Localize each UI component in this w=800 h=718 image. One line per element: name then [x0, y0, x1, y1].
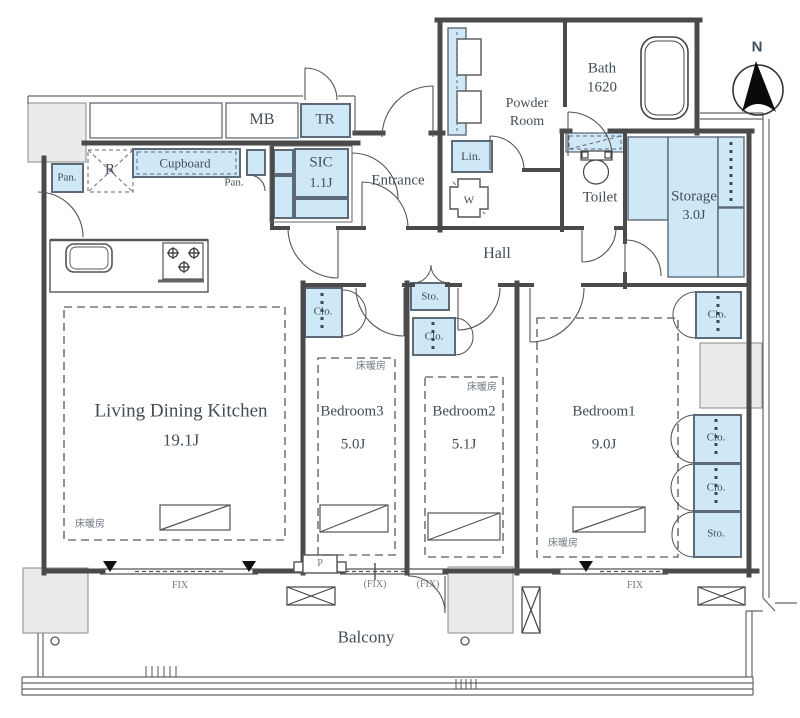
powder-room-label-1: Powder: [506, 97, 549, 111]
floor-heating-ldk: 床暖房: [75, 520, 105, 530]
toilet-label: Toilet: [583, 191, 618, 206]
compass-icon: [733, 61, 783, 115]
closet-right-2-label: Clo.: [707, 483, 726, 494]
balcony-drains: [51, 637, 469, 645]
closet-b2-label: Clo.: [425, 332, 444, 343]
pantry-label: Pan.: [57, 173, 76, 184]
bedroom2-bed: [428, 513, 500, 540]
bedroom2-label: Bedroom2: [432, 405, 495, 420]
fix-window-label-b1: FIX: [627, 581, 643, 591]
bath-size: 1620: [587, 81, 617, 96]
compass-north-label: N: [752, 40, 763, 55]
ldk-label: Living Dining Kitchen: [94, 402, 267, 421]
ldk-size: 19.1J: [163, 432, 199, 449]
pantry2-label: Pan.: [224, 178, 243, 189]
fix-window-label-b3: (FIX): [364, 580, 387, 590]
closet-right-1-label: Clo.: [707, 433, 726, 444]
sic-size: 1.1J: [310, 177, 333, 191]
bedroom2-size: 5.1J: [452, 438, 477, 453]
mb-label: MB: [250, 112, 275, 128]
powder-room-label-2: Room: [510, 115, 544, 129]
fix-window-label-ldk: FIX: [172, 581, 188, 591]
bedroom1-bed: [573, 507, 645, 532]
closet-b3-label: Clo.: [314, 307, 333, 318]
tr-label: TR: [315, 113, 334, 128]
p-pillar-label: P: [317, 559, 323, 569]
fix-window-label-b2: (FIX): [417, 580, 440, 590]
closet-b1-top-label: Clo.: [708, 310, 727, 321]
ldk-table: [160, 505, 230, 530]
hall-storage-label: Sto.: [421, 292, 438, 303]
furniture: [160, 505, 645, 540]
storage-label: Storage: [671, 190, 717, 205]
bedroom1-size: 9.0J: [592, 438, 617, 453]
floor-plan-drawing: [0, 0, 800, 718]
floor-heating-b3: 床暖房: [356, 362, 386, 372]
cupboard-label: Cupboard: [159, 157, 210, 170]
bedroom3-size: 5.0J: [341, 438, 366, 453]
bedroom3-label: Bedroom3: [320, 405, 383, 420]
entrance-label: Entrance: [371, 174, 424, 189]
bathtub: [641, 37, 688, 119]
floor-plan: MB TR Cupboard R Pan. Pan. SIC 1.1J Entr…: [0, 0, 800, 718]
hall-label: Hall: [483, 246, 511, 262]
toilet-bowl: [581, 151, 612, 184]
floor-heating-b2: 床暖房: [467, 383, 497, 393]
bedroom3-bed: [320, 505, 388, 532]
fridge-label: R: [105, 163, 115, 178]
storage-right-label: Sto.: [707, 529, 724, 540]
bath-label: Bath: [588, 62, 616, 77]
washer-label: W: [464, 196, 474, 207]
sic-label: SIC: [309, 156, 332, 171]
storage-size: 3.0J: [683, 209, 706, 223]
linen-label: Lin.: [461, 150, 481, 162]
floor-heating-b1: 床暖房: [548, 539, 578, 549]
bedroom1-label: Bedroom1: [572, 405, 635, 420]
ac-units: [287, 587, 745, 633]
balcony-label: Balcony: [338, 629, 395, 646]
stove: [163, 243, 203, 279]
